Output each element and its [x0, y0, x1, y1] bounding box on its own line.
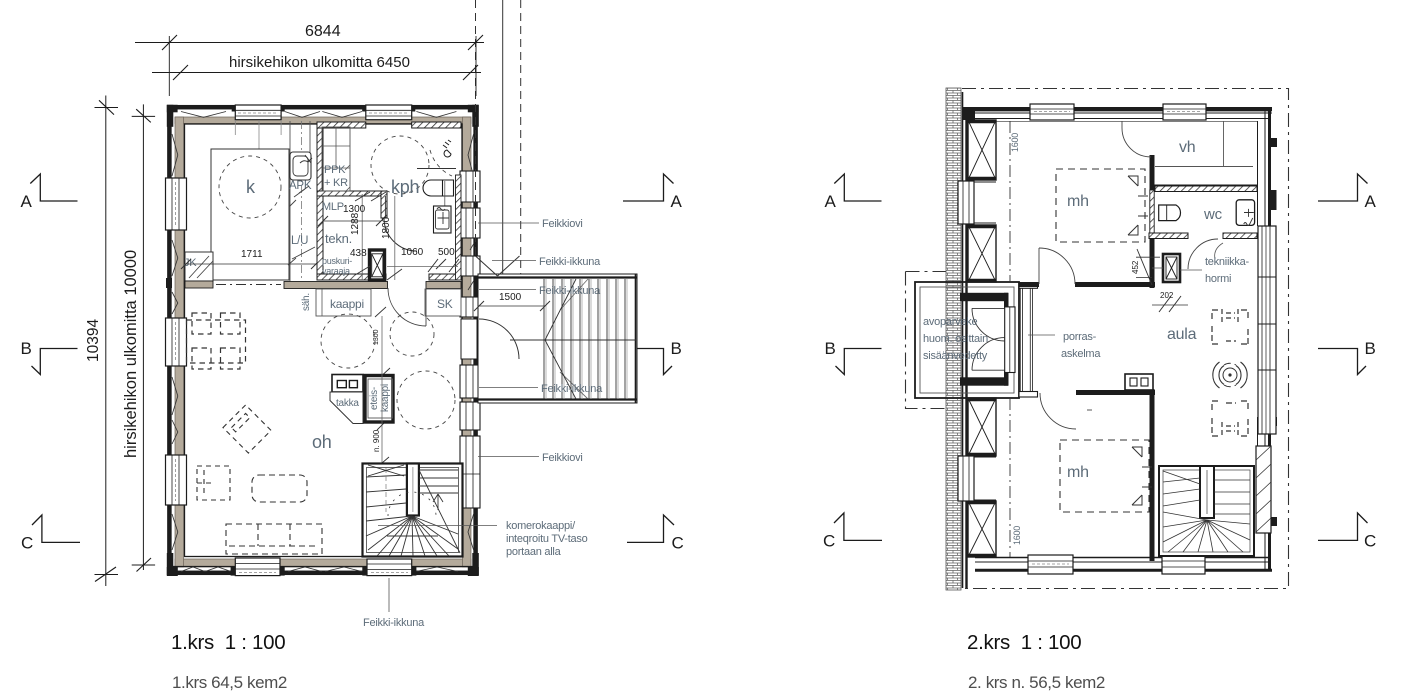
- svg-text:1300: 1300: [373, 329, 380, 345]
- svg-text:tekn.: tekn.: [325, 231, 352, 246]
- svg-text:säh.: säh.: [301, 293, 312, 311]
- svg-text:komerokaappi/: komerokaappi/: [506, 520, 576, 532]
- svg-text:mh: mh: [1067, 193, 1089, 210]
- svg-text:10394: 10394: [85, 319, 102, 362]
- svg-text:C: C: [1364, 532, 1376, 551]
- svg-text:Feikki-ikkuna: Feikki-ikkuna: [541, 383, 603, 395]
- svg-text:wc: wc: [1203, 206, 1223, 223]
- svg-text:A: A: [21, 192, 33, 211]
- svg-text:huom. osittain: huom. osittain: [923, 333, 988, 345]
- svg-text:portaan alla: portaan alla: [506, 546, 562, 558]
- svg-text:hirsikehikon ulkomitta 10000: hirsikehikon ulkomitta 10000: [122, 250, 140, 458]
- svg-text:SK: SK: [437, 297, 453, 311]
- svg-text:438: 438: [350, 248, 367, 259]
- svg-text:B: B: [825, 339, 836, 358]
- svg-text:2.krs 1 : 100: 2.krs 1 : 100: [967, 631, 1081, 654]
- svg-text:1060: 1060: [401, 247, 424, 258]
- svg-text:1.krs 1 : 100: 1.krs 1 : 100: [171, 631, 285, 654]
- svg-text:1800: 1800: [381, 216, 392, 239]
- svg-text:Feikkiovi: Feikkiovi: [542, 218, 583, 230]
- svg-text:A: A: [1365, 192, 1377, 211]
- svg-text:kaappi: kaappi: [330, 297, 364, 311]
- svg-text:PPK: PPK: [324, 164, 346, 176]
- svg-text:hormi: hormi: [1205, 273, 1231, 285]
- svg-text:A: A: [825, 192, 837, 211]
- svg-text:inteqroitu TV-taso: inteqroitu TV-taso: [506, 533, 588, 545]
- svg-text:452: 452: [1131, 260, 1140, 274]
- svg-text:Feikki-ikkuna: Feikki-ikkuna: [539, 256, 601, 268]
- svg-text:hirsikehikon ulkomitta 6450: hirsikehikon ulkomitta 6450: [229, 54, 410, 71]
- svg-text:1600: 1600: [1012, 526, 1022, 545]
- svg-text:1288: 1288: [350, 212, 361, 235]
- svg-text:kph: kph: [391, 177, 419, 197]
- svg-text:askelma: askelma: [1061, 348, 1101, 360]
- svg-text:C: C: [823, 532, 835, 551]
- svg-text:aula: aula: [1167, 326, 1197, 343]
- svg-text:eteis-: eteis-: [369, 387, 380, 410]
- svg-text:1500: 1500: [499, 292, 522, 303]
- svg-text:porras-: porras-: [1063, 331, 1097, 343]
- svg-text:puskuri-: puskuri-: [322, 256, 352, 266]
- svg-text:C: C: [21, 534, 33, 553]
- svg-text:Feikkiovi: Feikkiovi: [542, 452, 583, 464]
- svg-text:vh: vh: [1179, 139, 1195, 156]
- svg-text:takka: takka: [336, 398, 359, 409]
- svg-text:1.krs 64,5 kem2: 1.krs 64,5 kem2: [172, 673, 287, 692]
- svg-text:MLP: MLP: [322, 201, 344, 213]
- svg-text:2. krs n. 56,5 kem2: 2. krs n. 56,5 kem2: [968, 673, 1105, 692]
- svg-text:avoparveke: avoparveke: [923, 316, 978, 328]
- svg-text:L/U: L/U: [291, 235, 308, 247]
- svg-text:B: B: [671, 339, 682, 358]
- svg-text:1711: 1711: [241, 249, 263, 260]
- svg-text:6844: 6844: [305, 23, 341, 40]
- svg-text:mh: mh: [1067, 464, 1089, 481]
- svg-text:Feikki-ikkuna: Feikki-ikkuna: [539, 285, 601, 297]
- svg-text:500: 500: [438, 247, 455, 258]
- svg-text:A: A: [671, 192, 683, 211]
- svg-text:+ KR: + KR: [324, 177, 348, 189]
- svg-text:sisäänvedetty: sisäänvedetty: [923, 350, 988, 362]
- svg-text:1600: 1600: [1010, 133, 1020, 152]
- svg-text:n. 900: n. 900: [372, 429, 381, 452]
- svg-text:B: B: [1365, 339, 1376, 358]
- svg-text:tekniikka-: tekniikka-: [1205, 256, 1250, 268]
- svg-text:k: k: [246, 177, 256, 197]
- svg-text:B: B: [21, 339, 32, 358]
- svg-text:Feikki-ikkuna: Feikki-ikkuna: [363, 617, 425, 629]
- svg-text:C: C: [672, 534, 684, 553]
- svg-text:202: 202: [1160, 291, 1174, 300]
- svg-text:varaaja: varaaja: [322, 266, 350, 276]
- svg-text:oh: oh: [312, 432, 332, 452]
